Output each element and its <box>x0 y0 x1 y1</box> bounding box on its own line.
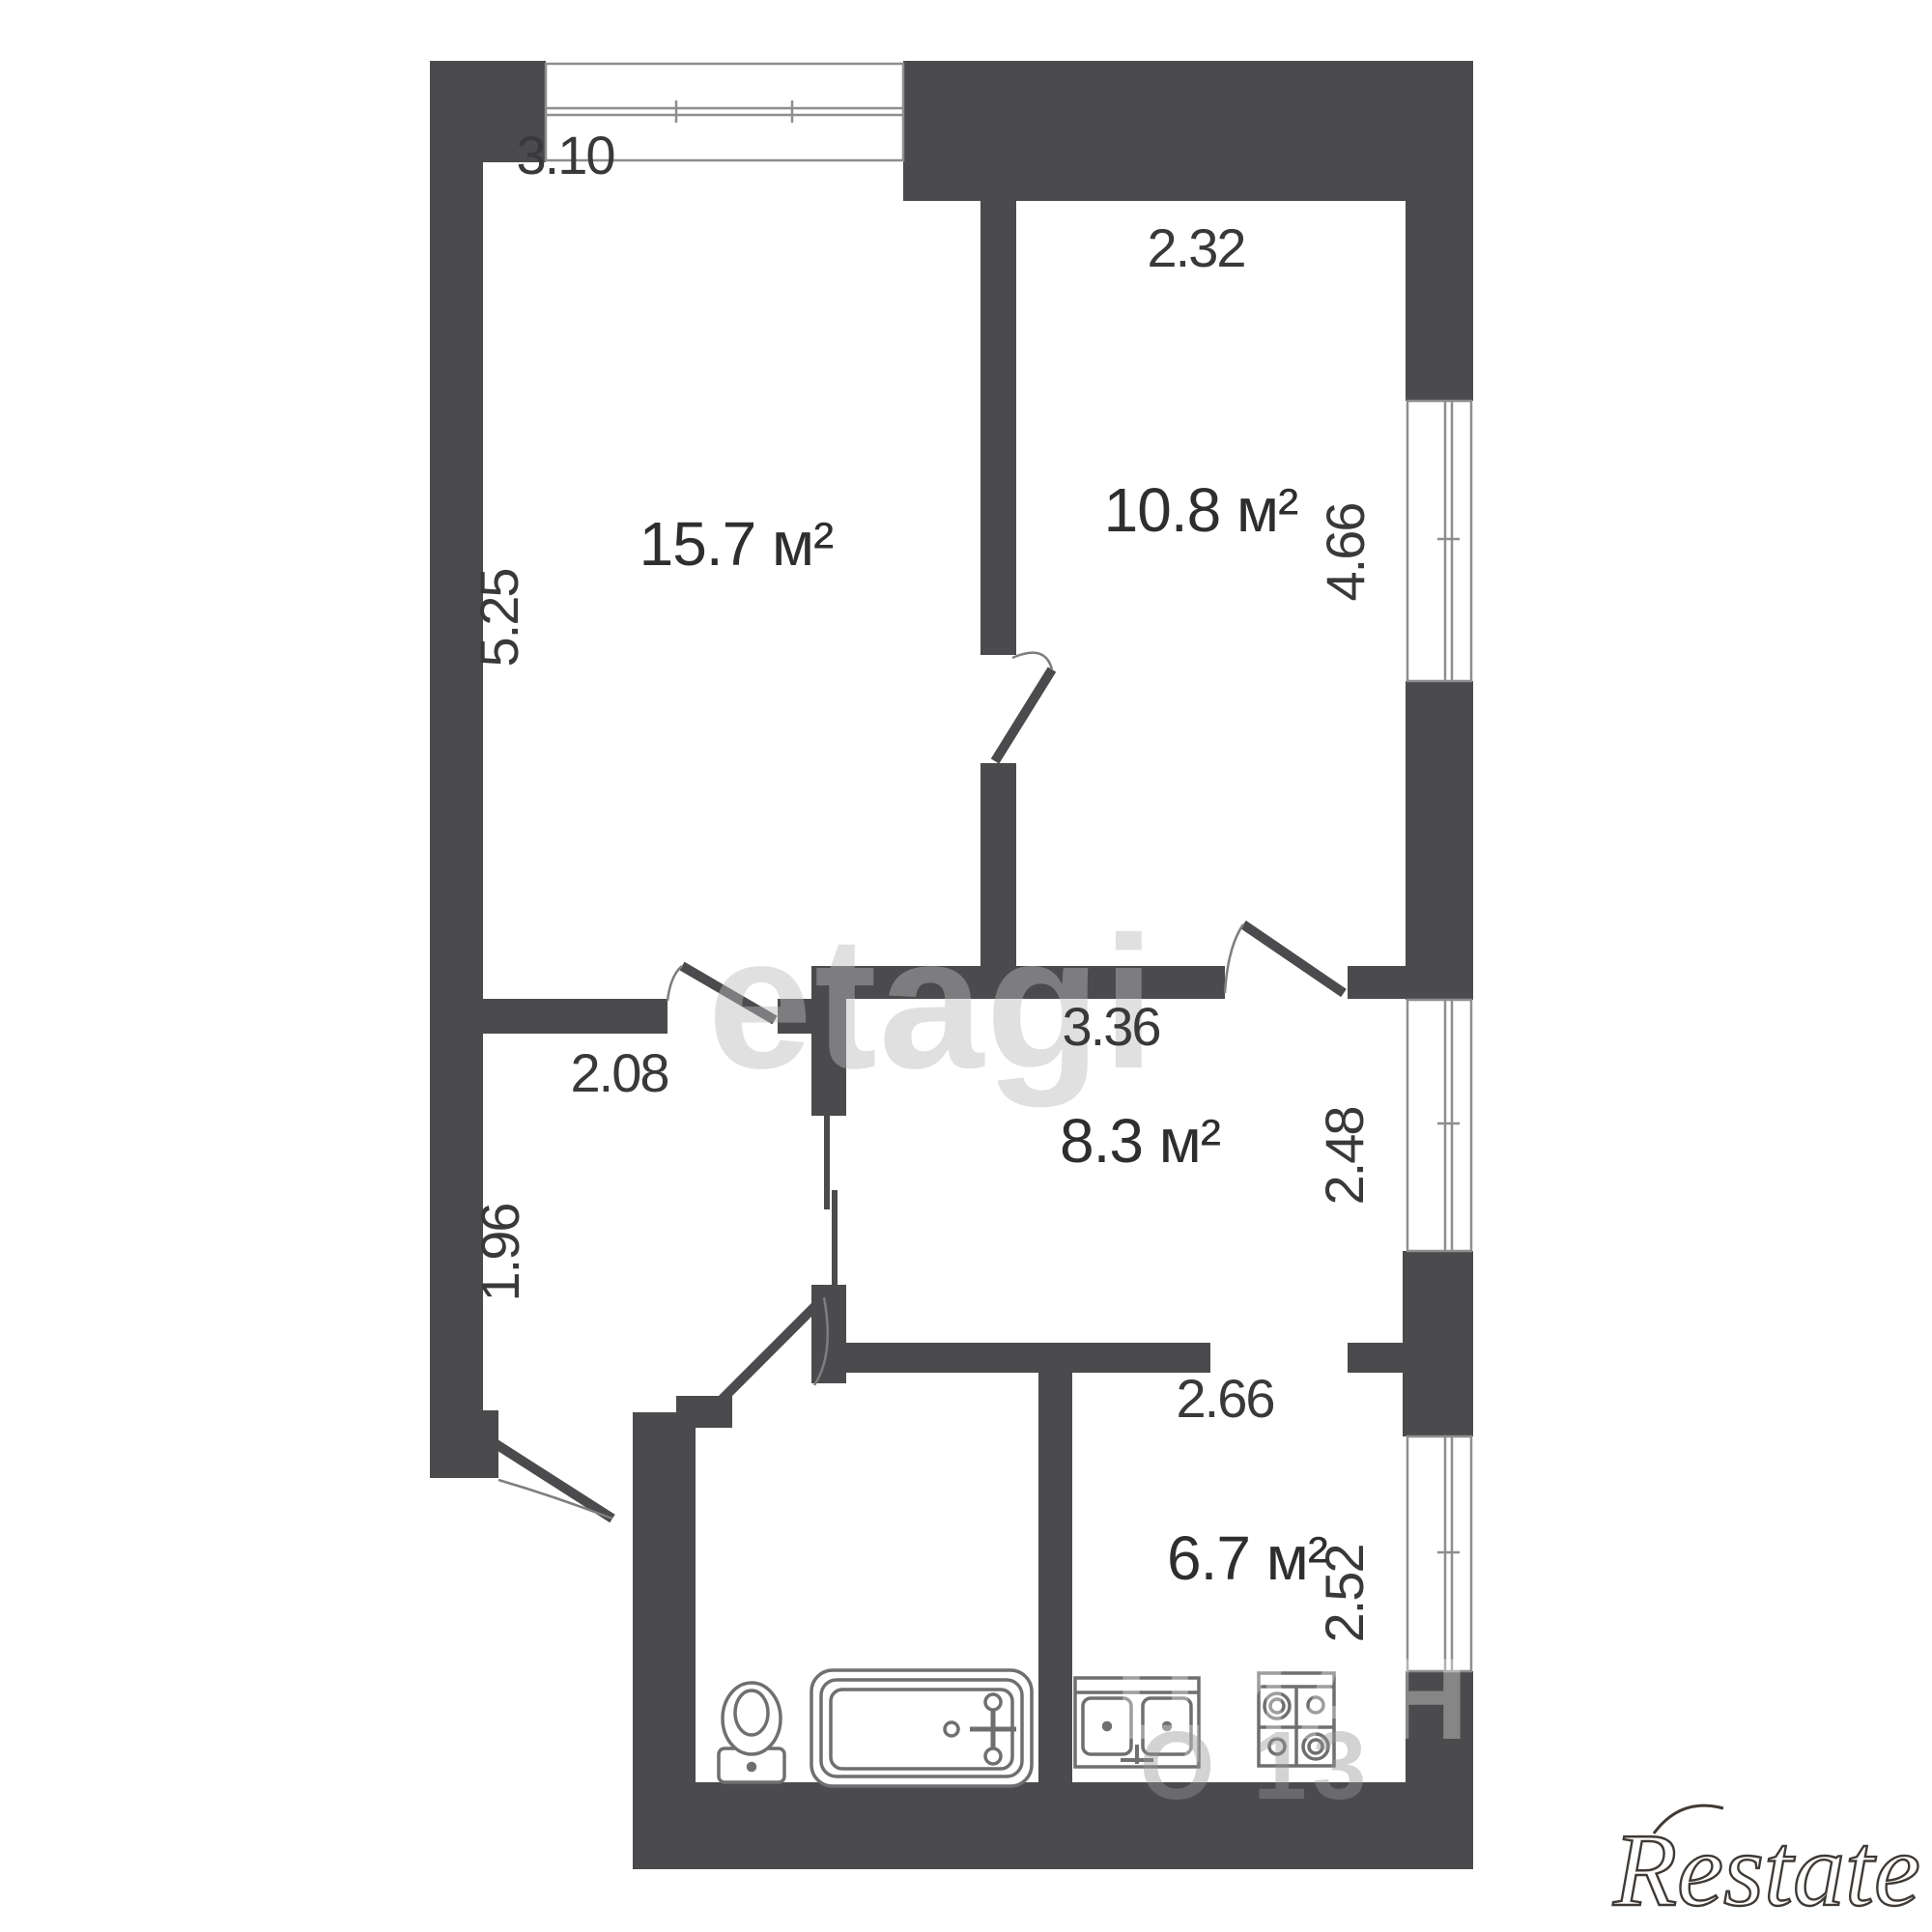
dim-hall-depth: 2.48 <box>1314 1108 1375 1206</box>
wall-segment <box>633 1412 696 1782</box>
dim-kitchen-width: 2.66 <box>1177 1368 1274 1429</box>
door-leaf <box>995 669 1052 761</box>
passage-line <box>832 1190 838 1289</box>
restate-watermark: Restate <box>1612 1805 1920 1928</box>
area-label-hall: 8.3 м² <box>1060 1106 1221 1176</box>
door-swing-arc <box>668 966 682 1001</box>
floor-plan-canvas: etagi ЦИАН О 13 Restate 3.10 5.25 15.7 м… <box>0 0 1932 1932</box>
area-label-bedroom: 10.8 м² <box>1104 475 1298 545</box>
passage-line <box>824 1111 830 1209</box>
wall-segment <box>846 1343 1210 1373</box>
toilet-button <box>749 1764 755 1771</box>
dim-bedroom-width: 2.32 <box>1148 217 1245 278</box>
door-leaf <box>719 1297 824 1403</box>
door-leaf <box>495 1443 612 1519</box>
dim-corridor-depth: 1.96 <box>469 1205 530 1302</box>
bathtub-tap-knob <box>985 1694 1001 1710</box>
wall-segment <box>980 201 1016 655</box>
floor-plan-page: etagi ЦИАН О 13 Restate 3.10 5.25 15.7 м… <box>0 0 1932 1932</box>
wall-segment <box>483 999 668 1034</box>
door-bedroom <box>995 653 1052 761</box>
labels: 3.10 5.25 15.7 м² 2.32 4.66 10.8 м² 2.08… <box>469 125 1376 1643</box>
dim-living-width: 3.10 <box>517 125 614 185</box>
area-label-kitchen: 6.7 м² <box>1167 1523 1328 1593</box>
dim-corridor-width: 2.08 <box>571 1042 668 1103</box>
toilet-bowl-inner <box>735 1690 768 1735</box>
bathtub-tap-knob <box>985 1748 1001 1764</box>
wall-segment <box>1406 61 1473 401</box>
dim-hall-width: 3.36 <box>1063 996 1160 1057</box>
bathtub-icon <box>811 1670 1032 1786</box>
door-hall-to-bedroom <box>1225 924 1344 993</box>
sink-drain <box>1104 1723 1111 1730</box>
wall-segment <box>1348 1343 1406 1373</box>
door-bathroom <box>719 1297 828 1403</box>
dim-bedroom-depth: 4.66 <box>1315 504 1376 602</box>
window-right-hall <box>1407 1000 1471 1251</box>
wall-segment <box>1038 1373 1072 1782</box>
wall-segment <box>1403 1251 1473 1436</box>
toilet-icon <box>719 1683 784 1782</box>
window-frame <box>1407 401 1471 681</box>
wall-segment <box>903 61 1473 201</box>
door-swing-arc <box>1225 924 1243 993</box>
wall-segment <box>1406 681 1473 1000</box>
area-label-living: 15.7 м² <box>639 509 834 579</box>
door-entrance <box>495 1443 612 1519</box>
window-frame <box>1407 1000 1471 1251</box>
door-swing-arc <box>1012 653 1052 669</box>
door-leaf <box>1243 924 1344 993</box>
window-right-bedroom <box>1407 401 1471 681</box>
dim-living-depth: 5.25 <box>469 570 529 668</box>
wall-segment <box>1348 966 1406 999</box>
restate-logo-text: Restate <box>1612 1813 1920 1928</box>
bathtub-drain <box>945 1722 958 1736</box>
cian-number-fragment: О 13 <box>1140 1712 1373 1820</box>
